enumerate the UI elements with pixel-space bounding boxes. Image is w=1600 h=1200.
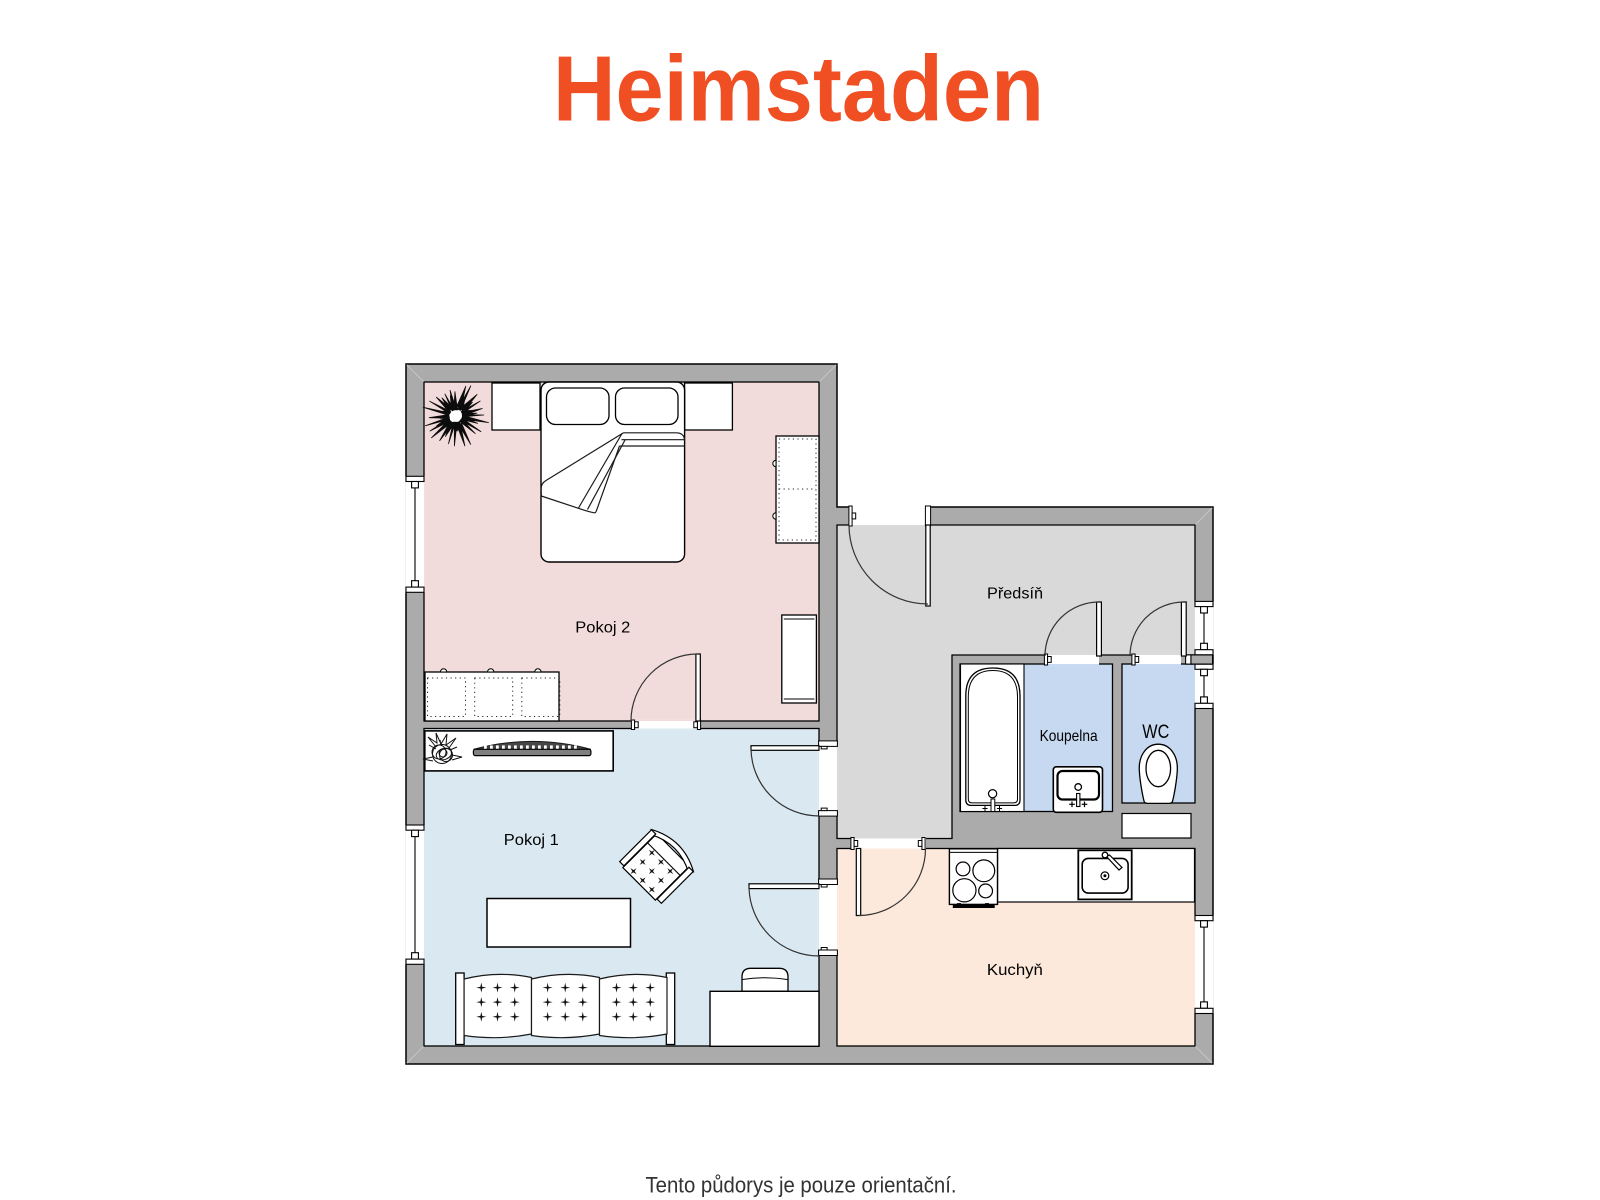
svg-text:Pokoj 2: Pokoj 2 [575, 620, 630, 637]
svg-text:Kuchyň: Kuchyň [987, 962, 1043, 979]
svg-text:WC: WC [1142, 722, 1169, 743]
svg-text:Heimstaden: Heimstaden [553, 37, 1044, 141]
svg-text:Předsíň: Předsíň [987, 586, 1043, 603]
svg-text:Pokoj 1: Pokoj 1 [504, 832, 559, 849]
svg-text:Koupelna: Koupelna [1040, 728, 1098, 745]
svg-text:Tento půdorys je pouze orienta: Tento půdorys je pouze orientační. [646, 1173, 957, 1198]
